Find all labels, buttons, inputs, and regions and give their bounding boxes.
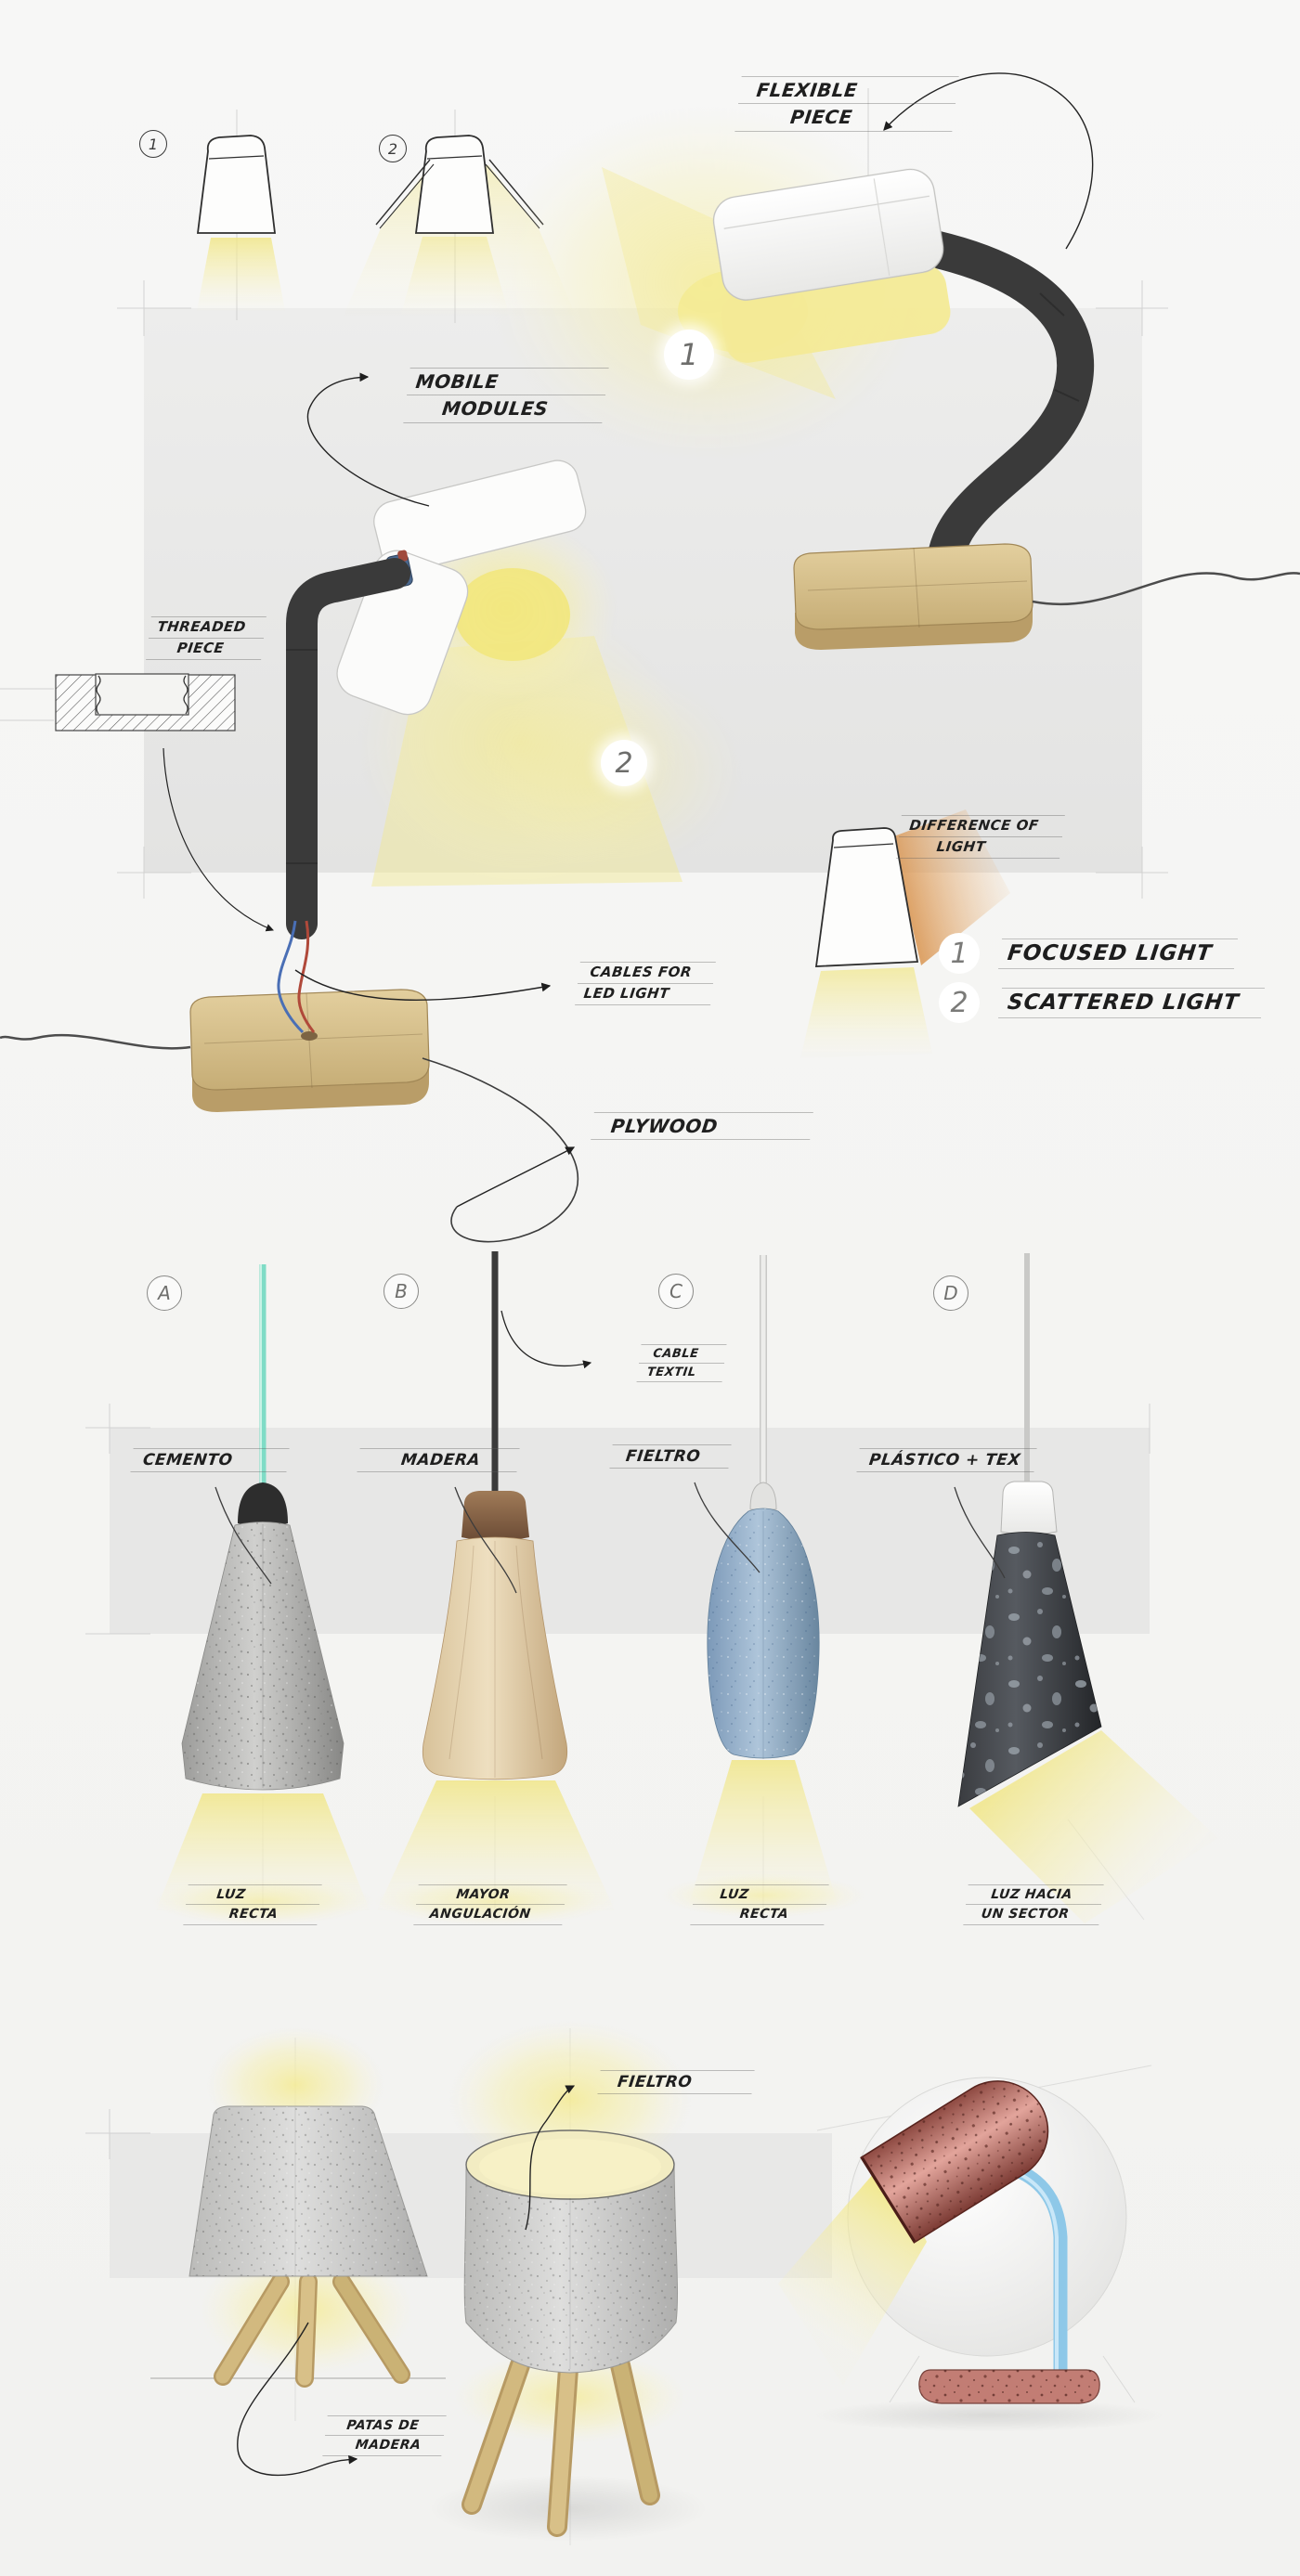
pendant-a-badge: A — [147, 1275, 182, 1311]
view-1-badge: 1 — [664, 330, 714, 380]
sketch-number-2: 2 — [388, 140, 397, 158]
legend-scattered-text: SCATTERED LIGHT — [998, 988, 1265, 1018]
sketch-number-1-badge: 1 — [139, 130, 167, 158]
threaded-piece-label: THREADED PIECE — [146, 616, 266, 660]
pendant-c-letter: C — [669, 1280, 682, 1302]
legend-scattered: 2 SCATTERED LIGHT — [939, 982, 1263, 1023]
mobile-modules-label: MOBILE MODULES — [403, 368, 608, 423]
caption-a-label: LUZ RECTA — [183, 1884, 321, 1925]
sketch-artwork — [0, 0, 1300, 2576]
caption-b-label: MAYOR ANGULACIÓN — [413, 1884, 566, 1925]
legend-focused-number: 1 — [939, 933, 980, 974]
legend-focused: 1 FOCUSED LIGHT — [939, 933, 1236, 974]
red-desk-lamp — [778, 2062, 1165, 2432]
difference-of-light-label: DIFFERENCE OF LIGHT — [896, 815, 1065, 859]
tripod-lamp-perspective — [429, 2021, 708, 2542]
pendant-a-letter: A — [158, 1282, 171, 1304]
caption-d-label: LUZ HACIA UN SECTOR — [963, 1884, 1103, 1925]
material-madera-label: MADERA — [357, 1448, 519, 1472]
material-plastico-label: PLÁSTICO + TEX — [856, 1448, 1036, 1472]
shade-sketch-focused — [197, 136, 285, 311]
view-2-badge: 2 — [601, 740, 647, 786]
flexible-piece-label: FLEXIBLE PIECE — [734, 76, 958, 132]
pendant-b-letter: B — [395, 1280, 408, 1302]
legend-scattered-number: 2 — [939, 982, 980, 1023]
cables-for-led-label: CABLES FOR LED LIGHT — [575, 962, 716, 1005]
patas-de-madera-label: PATAS DE MADERA — [322, 2415, 446, 2456]
pendant-d-letter: D — [943, 1282, 957, 1304]
pendant-d-badge: D — [933, 1275, 968, 1311]
caption-c-label: LUZ RECTA — [690, 1884, 828, 1925]
legend-focused-text: FOCUSED LIGHT — [998, 938, 1238, 969]
threaded-piece-section — [56, 674, 235, 731]
view-1-number: 1 — [680, 337, 698, 372]
sketch-number-1: 1 — [149, 136, 158, 153]
sketch-number-2-badge: 2 — [379, 135, 407, 162]
view-2-number: 2 — [615, 747, 632, 780]
plywood-label: PLYWOOD — [591, 1112, 813, 1140]
fieltro-bottom-label: FIELTRO — [597, 2070, 754, 2094]
pendant-b-badge: B — [383, 1274, 419, 1309]
design-sketch-canvas: 1 2 FLEXIBLE PIECE MOBILE MODULES THREAD… — [0, 0, 1300, 2576]
material-cemento-label: CEMENTO — [130, 1448, 289, 1472]
cable-textil-label: CABLE TEXTIL — [636, 1344, 726, 1382]
material-fieltro-label: FIELTRO — [609, 1444, 731, 1469]
pendant-c-badge: C — [658, 1274, 694, 1309]
